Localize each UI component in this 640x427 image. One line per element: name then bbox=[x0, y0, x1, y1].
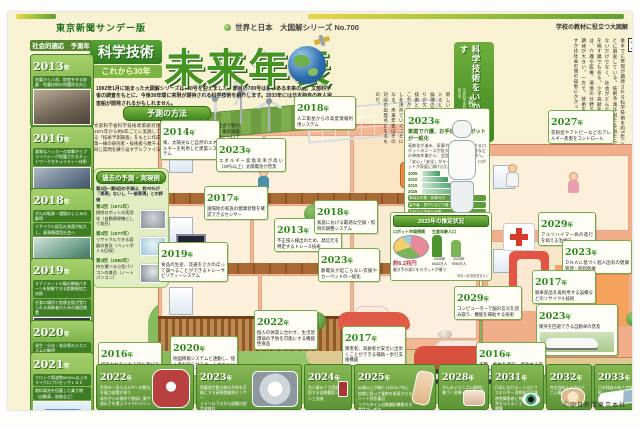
panel-text: １ミリ以下のがん組織の超音波検診 bbox=[200, 402, 248, 410]
panel-year: 2032 bbox=[550, 372, 576, 383]
callout-2027-allergy: 2027年花粉症やアトピーなどのアレルギー疾患をコントロール bbox=[548, 110, 614, 144]
callout-year: 2029 bbox=[541, 219, 567, 230]
item-year: 2016 bbox=[33, 132, 64, 145]
item-text2: 任意の場所で医療支援が受けられる高齢者のための通信装置 bbox=[33, 299, 91, 317]
bottom-2023: 2023年 地震発生数分前の予知を可能にする高密度観測センサー １ミリ以下のがん… bbox=[196, 364, 302, 410]
edition-title: 東京新聞サンデー版 bbox=[56, 21, 146, 34]
estimate-2025-panel: 2025年の推定状況 ロボット市場規模 約6.2兆円 生産年齢人口 2005年 … bbox=[390, 212, 492, 281]
year-suffix: 年 bbox=[226, 376, 232, 382]
year-suffix: 年 bbox=[245, 149, 251, 155]
callout-2017-walking-aid: 2017年障害者、高齢者が安全に出歩くことができる補助・歩行支援機器 bbox=[342, 326, 406, 366]
left-item-2021: 2021年 クロック周波数50GHz以上のマイクロプロセッサＬＳＩ 燃料電池を搭… bbox=[30, 352, 94, 410]
year-suffix: 年 bbox=[283, 321, 289, 327]
market-total: 約6.2兆円 bbox=[393, 259, 429, 267]
method-heading: 予測の方法 bbox=[123, 106, 211, 121]
callout-year: 2023 bbox=[321, 255, 347, 266]
callout-year: 2023 bbox=[565, 247, 591, 258]
year-suffix: 年 bbox=[64, 270, 70, 276]
left-column-heading: 社会的適応 予測年 bbox=[30, 40, 92, 51]
panel-text: 人工血液 bbox=[308, 397, 348, 402]
badge-line1: 科学技術 bbox=[90, 40, 162, 64]
item-year: 2021 bbox=[33, 358, 64, 371]
callout-text: 衝突を回避できる自動車の普及 bbox=[539, 324, 615, 330]
year-suffix: 年 bbox=[189, 131, 195, 137]
population-block: 生産年齢人口 2005年 8442万人 2025年 7096万人 bbox=[432, 229, 466, 267]
medicated-sheet-photo bbox=[411, 370, 436, 407]
panel-text: 体外からの操作で患部に薬や遺伝子を運ぶマイクロマシン bbox=[100, 397, 152, 407]
callout-year: 2023 bbox=[539, 311, 565, 322]
year-suffix: 年 bbox=[303, 229, 309, 235]
past-item: 第3回（1982年） 持ち運べる小型パソコンの普及（ノートパソコン） bbox=[96, 258, 166, 283]
robot-vacuum-photo bbox=[140, 210, 166, 229]
callout-year: 2027 bbox=[551, 117, 577, 128]
globe-icon bbox=[224, 24, 231, 31]
bottom-2025: 2025年 65歳以上が総人口の28.7％に 皮膚に貼って薬剤を吸収させるシート… bbox=[354, 364, 436, 410]
callout-text: 個人の体質に合わせ、生活習慣病の予防を可能にする機能性食品 bbox=[257, 330, 315, 347]
panel-text: 視覚障害者に視覚を与える人工網膜 bbox=[495, 397, 523, 410]
year-suffix: 年 bbox=[126, 376, 132, 382]
panel-year: 2033 bbox=[598, 372, 624, 383]
callout-2018-climate-control: 2018年家庭における最適な空調・照明の調整システム bbox=[314, 200, 378, 234]
iv-blood-bag-photo bbox=[338, 381, 348, 397]
past-heading: 過去の予測・実現例 bbox=[96, 171, 166, 184]
year-suffix: 年 bbox=[483, 297, 489, 303]
callout-text: 花粉症やアトピーなどのアレルギー疾患をコントロール bbox=[551, 130, 611, 141]
timeline-year: 2005 bbox=[408, 171, 422, 176]
year-suffix: 年 bbox=[434, 120, 440, 126]
school-note: 学校の教材に役立つ大図解 bbox=[556, 22, 628, 31]
item-text2: リサイクル部品の流通が拡大し、資源循環型社会へ bbox=[33, 223, 91, 235]
callout-year: 2023 bbox=[219, 145, 245, 156]
callout-2022-functional-food: 2022年個人の体質に合わせ、生活習慣病の予防を可能にする機能性食品 bbox=[254, 310, 318, 350]
series-label: 世界と日本 大図解シリーズ bbox=[235, 23, 332, 32]
callout-2023-solar: 2023年エネルギー変換効率が高い（20％以上）太陽電池が普及 bbox=[216, 138, 286, 172]
callout-2014-eco-building: 2014年風、太陽光など自然のエネルギーを利用した建築システム bbox=[160, 120, 220, 160]
callout-text: 家庭における最適な空調・照明の調整システム bbox=[317, 220, 375, 231]
callout-year: 2017 bbox=[207, 193, 233, 204]
screenshot-frame: 東京新聞サンデー版 世界と日本 大図解シリーズ No.700 学校の教材に役立つ… bbox=[0, 0, 640, 427]
panel-text: 皮膚に貼って薬剤を吸収させるシート状医薬品 bbox=[358, 392, 414, 402]
panel-year: 2031 bbox=[495, 372, 521, 383]
callout-year: 2029 bbox=[457, 293, 483, 304]
year-suffix: 年 bbox=[343, 211, 349, 217]
robot-market-pie-chart bbox=[393, 235, 429, 259]
item-text: がんの転移・増殖のしくみの解明 bbox=[33, 210, 91, 222]
copyright: Ⓒ中日新聞東京本社 bbox=[563, 400, 626, 409]
callout-2029-brain-interface: 2029年コンピューターで脳の信号を読み取り、機能を補助する技術 bbox=[454, 286, 522, 320]
population-value: 8442万人 bbox=[432, 262, 447, 267]
bottom-2031: 2031年 日本における一人当たりエネルギー消費量が半減 視覚障害者に視覚を与え… bbox=[491, 364, 544, 410]
earthquake-photo bbox=[33, 89, 91, 125]
item-text: 地震から人命、財産を守る耐震・免震技術の飛躍的な向上 bbox=[33, 76, 91, 88]
blood-vessel-capsule-photo bbox=[152, 369, 190, 408]
window bbox=[169, 287, 193, 315]
callout-text: 風、太陽光など自然のエネルギーを利用した建築システム bbox=[163, 140, 217, 157]
callout-year: 2016 bbox=[479, 349, 505, 360]
cleaning-robot-ball bbox=[438, 330, 452, 339]
callout-text: 廃車部品を再利用する設備などのリサイクル技術 bbox=[535, 290, 593, 301]
earth-land bbox=[294, 55, 310, 67]
panel-year: 2022 bbox=[100, 372, 126, 383]
callout-2023-collision-avoidance: 2023年衝突を回避できる自動車の普及 bbox=[536, 304, 618, 356]
past-item-text: 持ち運べる小型パソコンの普及（ノートパソコン） bbox=[96, 264, 134, 280]
top-left-strip bbox=[16, 14, 56, 19]
item-year: 2019 bbox=[33, 264, 64, 277]
mri-scanner-photo bbox=[252, 371, 298, 407]
callout-text: 静電気が起こらない衣服やカーペットの一般化 bbox=[321, 268, 377, 279]
year-suffix: 年 bbox=[64, 138, 70, 144]
callout-text: 食品の生産、流通をさかのぼって調べることができるトレーサビリティーシステム bbox=[161, 262, 225, 279]
series-number: No.700 bbox=[334, 23, 359, 32]
artificial-retina-eye-photo bbox=[522, 393, 540, 406]
estimate-heading: 2025年の推定状況 bbox=[393, 215, 489, 227]
earth-illustration bbox=[288, 46, 326, 84]
callout-year: 2014 bbox=[163, 127, 189, 138]
elderly-couple-photo bbox=[463, 390, 485, 406]
callout-2017-car-recycling: 2017年廃車部品を再利用する設備などのリサイクル技術 bbox=[532, 270, 596, 304]
year-suffix: 年 bbox=[323, 107, 329, 113]
callout-text: エネルギー変換効率が高い（20％以上）太陽電池が普及 bbox=[219, 158, 283, 169]
year-suffix: 年 bbox=[576, 376, 582, 382]
past-item: 第1回（1971年） 掃除ロボットの実用化（自動掃除機として発売） bbox=[96, 204, 166, 229]
callout-year: 2020 bbox=[173, 343, 199, 354]
year-suffix: 年 bbox=[127, 353, 133, 359]
bottom-2024: 2024年 名人級の７カ国語を翻訳する自動翻訳ソフト 人工血液 bbox=[304, 364, 352, 410]
estimate-source: 資料＝経済産業省など bbox=[393, 273, 489, 278]
article-lead-char: 文 bbox=[628, 38, 632, 52]
year-suffix: 年 bbox=[591, 251, 597, 257]
past-item-text: 掃除ロボットの実用化（自動掃除機として発売） bbox=[96, 210, 134, 226]
callout-year: 2017 bbox=[535, 277, 561, 288]
series-title: 世界と日本 大図解シリーズ No.700 bbox=[224, 22, 359, 33]
item-year: 2013 bbox=[33, 60, 64, 73]
year-suffix: 年 bbox=[624, 376, 630, 382]
callout-text: 人工衛星からの高度情報利用システム bbox=[297, 116, 353, 127]
item-year: 2018 bbox=[33, 194, 64, 207]
panel-year: 2024 bbox=[308, 372, 334, 383]
callout-text: 障害者、高齢者が安全に出歩くことができる補助・歩行支援機器 bbox=[345, 346, 403, 363]
year-suffix: 年 bbox=[371, 337, 377, 343]
callout-year: 2017 bbox=[345, 333, 371, 344]
callout-2017-health-sensor: 2017年遠隔地の家族の健康状態を確認できるセンサー bbox=[204, 186, 268, 220]
callout-year: 2019 bbox=[161, 249, 187, 260]
past-item-text: リサイクルできる容器の普及（ペットボトル回収） bbox=[96, 237, 134, 253]
elderly-figure bbox=[568, 172, 579, 193]
item-text: クロック周波数50GHz以上のマイクロプロセッサＬＳＩ bbox=[33, 374, 91, 386]
year-suffix: 年 bbox=[565, 315, 571, 321]
year-suffix: 年 bbox=[577, 121, 583, 127]
year-suffix: 年 bbox=[521, 376, 527, 382]
red-cross-sign bbox=[503, 223, 535, 251]
year-suffix: 年 bbox=[199, 347, 205, 353]
market-title: ロボット市場規模 bbox=[393, 229, 429, 235]
year-suffix: 年 bbox=[64, 364, 70, 370]
year-suffix: 年 bbox=[468, 376, 474, 382]
year-suffix: 年 bbox=[567, 223, 573, 229]
earth-land2 bbox=[308, 68, 318, 76]
callout-year: 2013 bbox=[277, 225, 303, 236]
population-figure-2005: 2005年 8442万人 bbox=[432, 235, 447, 267]
top-right-strip bbox=[308, 14, 624, 19]
year-suffix: 年 bbox=[384, 376, 390, 382]
title-badge: 科学技術 これから30年 bbox=[90, 40, 162, 78]
doctor-figure bbox=[506, 164, 519, 187]
past-item: 第2回（1977年） リサイクルできる容器の普及（ペットボトル回収） bbox=[96, 231, 166, 256]
left-item-2018: 2018年 がんの転移・増殖のしくみの解明 リサイクル部品の流通が拡大し、資源循… bbox=[30, 188, 94, 266]
callout-text: 遠隔地の家族の健康状態を確認できるセンサー bbox=[207, 206, 265, 217]
year-suffix: 年 bbox=[187, 253, 193, 259]
year-suffix: 年 bbox=[233, 197, 239, 203]
callout-year: 2018 bbox=[317, 207, 343, 218]
panel-text: 世界の一次エネルギーの数％を風力発電が担う bbox=[100, 386, 152, 396]
population-value: 7096万人 bbox=[451, 262, 466, 267]
callout-year: 2018 bbox=[297, 103, 323, 114]
callout-2023-antistatic: 2023年静電気が起こらない衣服やカーペットの一般化 bbox=[318, 248, 380, 282]
badge-line2: これから30年 bbox=[90, 65, 162, 78]
callout-year: 2016 bbox=[101, 349, 127, 360]
home-robot-illustration bbox=[446, 120, 478, 216]
bottom-2022: 2022年 世界の一次エネルギーの数％を風力発電が担う 体外からの操作で患部に薬… bbox=[96, 364, 194, 410]
item-text2: 燃料電池を搭載した乗り物（自動車、船舶など） bbox=[33, 387, 91, 399]
year-suffix: 年 bbox=[505, 353, 511, 359]
left-item-2013: 2013年 地震から人命、財産を守る耐震・免震技術の飛躍的な向上 bbox=[30, 54, 94, 128]
panel-text: リアルタイム自動翻訳機能付き電話が一般化 bbox=[358, 403, 414, 410]
item-text: 悪質なハッカーの攻撃からプライバシーが保護されるネットワークセキュリティー技術 bbox=[33, 148, 91, 166]
newspaper-page: 東京新聞サンデー版 世界と日本 大図解シリーズ No.700 学校の教材に役立つ… bbox=[8, 12, 632, 410]
white-car-photo bbox=[539, 331, 615, 353]
fuel-cell-car-photo bbox=[33, 401, 91, 410]
panel-year: 2023 bbox=[200, 372, 226, 383]
callout-year: 2022 bbox=[257, 317, 283, 328]
callout-2018-satellite: 2018年人工衛星からの高度情報利用システム bbox=[294, 96, 356, 130]
year-suffix: 年 bbox=[64, 200, 70, 206]
timeline-year: 2025 bbox=[408, 189, 422, 194]
left-item-2016: 2016年 悪質なハッカーの攻撃からプライバシーが保護されるネットワークセキュリ… bbox=[30, 126, 94, 196]
panel-year: 2025 bbox=[358, 372, 384, 383]
timeline-year: 2015 bbox=[408, 183, 422, 188]
callout-text: コンピューターで脳の信号を読み取り、機能を補助する技術 bbox=[457, 306, 519, 317]
past-note: 第1回～第5回の予測は、約70％が「実現」ないし「一部実現」との評価 bbox=[96, 186, 166, 202]
item-text: ５ナノメートル幅の微細パターンを制御できる超微細加工技術 bbox=[33, 280, 91, 298]
callout-2019-traceability: 2019年食品の生産、流通をさかのぼって調べることができるトレーサビリティーシス… bbox=[158, 242, 228, 282]
year-suffix: 年 bbox=[561, 281, 567, 287]
panel-year: 2028 bbox=[442, 372, 468, 383]
timeline-year: 2010 bbox=[408, 177, 422, 182]
item-year: 2020 bbox=[33, 326, 64, 339]
year-suffix: 年 bbox=[347, 259, 353, 265]
population-figure-2025: 2025年 7096万人 bbox=[451, 240, 466, 267]
callout-year: 2023 bbox=[408, 116, 434, 127]
bottom-2028: 2028年 がんのメカニズム解明に基づく治療への応用 bbox=[438, 364, 489, 410]
year-suffix: 年 bbox=[64, 332, 70, 338]
panel-text: 地震発生数分前の予知を可能にする高密度観測センサー bbox=[200, 386, 248, 401]
robot-market-block: ロボット市場規模 約6.2兆円 bbox=[393, 229, 429, 267]
year-suffix: 年 bbox=[64, 66, 70, 72]
